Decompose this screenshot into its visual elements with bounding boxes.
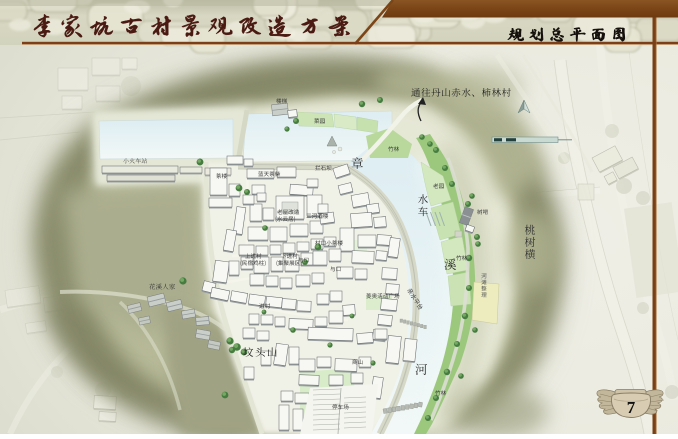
svg-text:7: 7 <box>627 398 636 417</box>
